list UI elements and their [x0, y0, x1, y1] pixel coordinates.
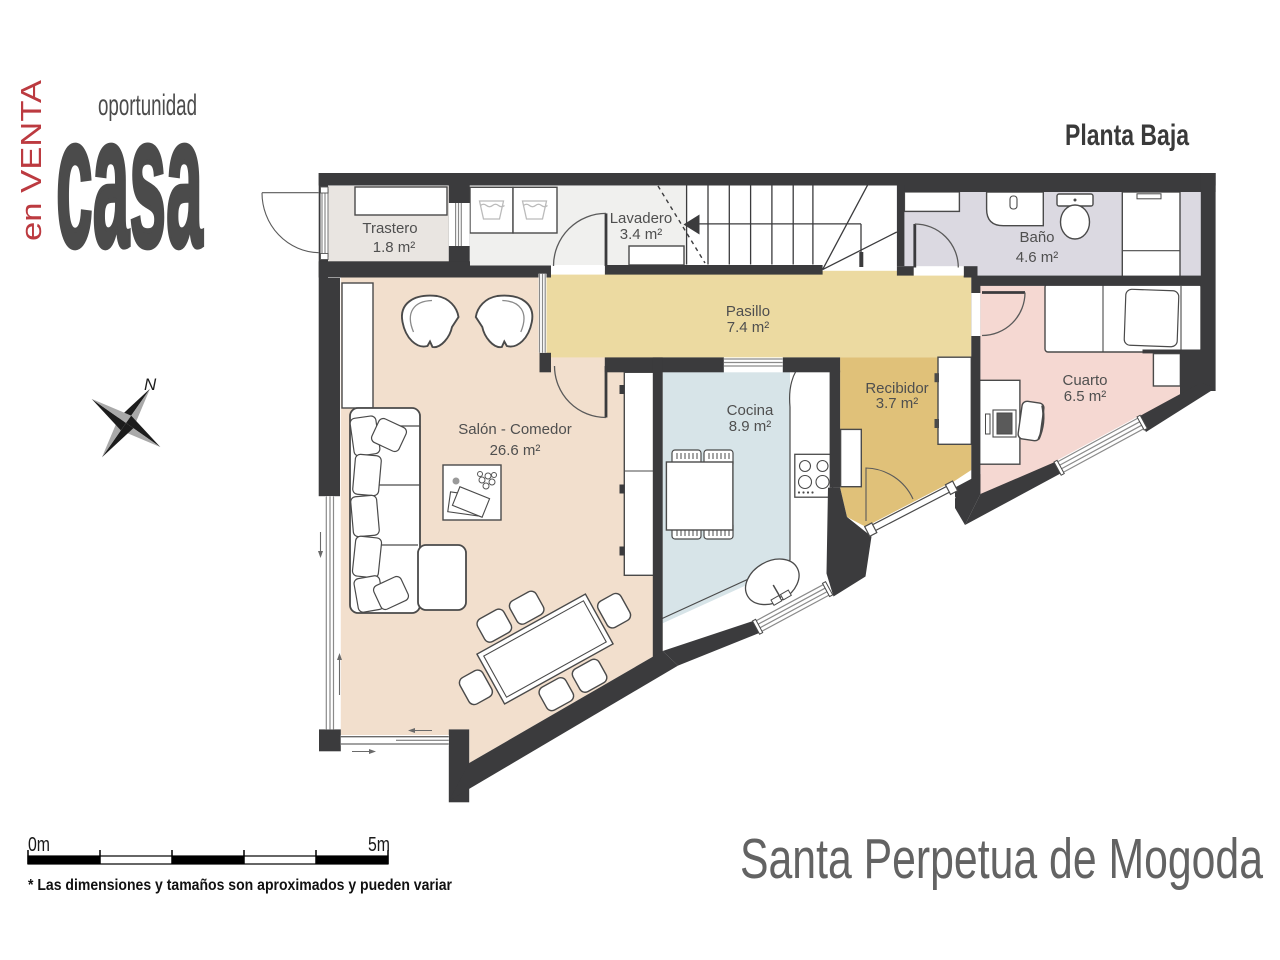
svg-text:* Las dimensiones y tamaños so: * Las dimensiones y tamaños son aproxima… [28, 877, 452, 894]
svg-text:casa: casa [56, 77, 204, 286]
svg-text:Planta Baja: Planta Baja [1065, 119, 1189, 152]
svg-text:7.4 m²: 7.4 m² [727, 319, 770, 336]
svg-text:Lavadero: Lavadero [610, 210, 673, 227]
svg-text:1.8 m²: 1.8 m² [373, 239, 416, 256]
svg-text:3.7 m²: 3.7 m² [876, 395, 919, 412]
svg-text:3.4 m²: 3.4 m² [620, 226, 663, 243]
svg-text:Baño: Baño [1019, 229, 1054, 246]
svg-text:5m: 5m [368, 834, 390, 856]
svg-text:0m: 0m [28, 834, 50, 856]
svg-text:8.9 m²: 8.9 m² [729, 418, 772, 435]
svg-text:Santa Perpetua de Mogoda: Santa Perpetua de Mogoda [740, 827, 1263, 891]
svg-text:Salón - Comedor: Salón - Comedor [458, 421, 571, 438]
svg-text:Pasillo: Pasillo [726, 303, 770, 320]
svg-text:26.6 m²: 26.6 m² [490, 442, 541, 459]
svg-text:4.6 m²: 4.6 m² [1016, 249, 1059, 266]
svg-text:en VENTA: en VENTA [16, 79, 48, 241]
svg-text:Trastero: Trastero [362, 220, 417, 237]
svg-text:6.5 m²: 6.5 m² [1064, 388, 1107, 405]
svg-text:Cocina: Cocina [727, 402, 774, 419]
svg-text:N: N [144, 375, 157, 394]
svg-text:Cuarto: Cuarto [1062, 372, 1107, 389]
